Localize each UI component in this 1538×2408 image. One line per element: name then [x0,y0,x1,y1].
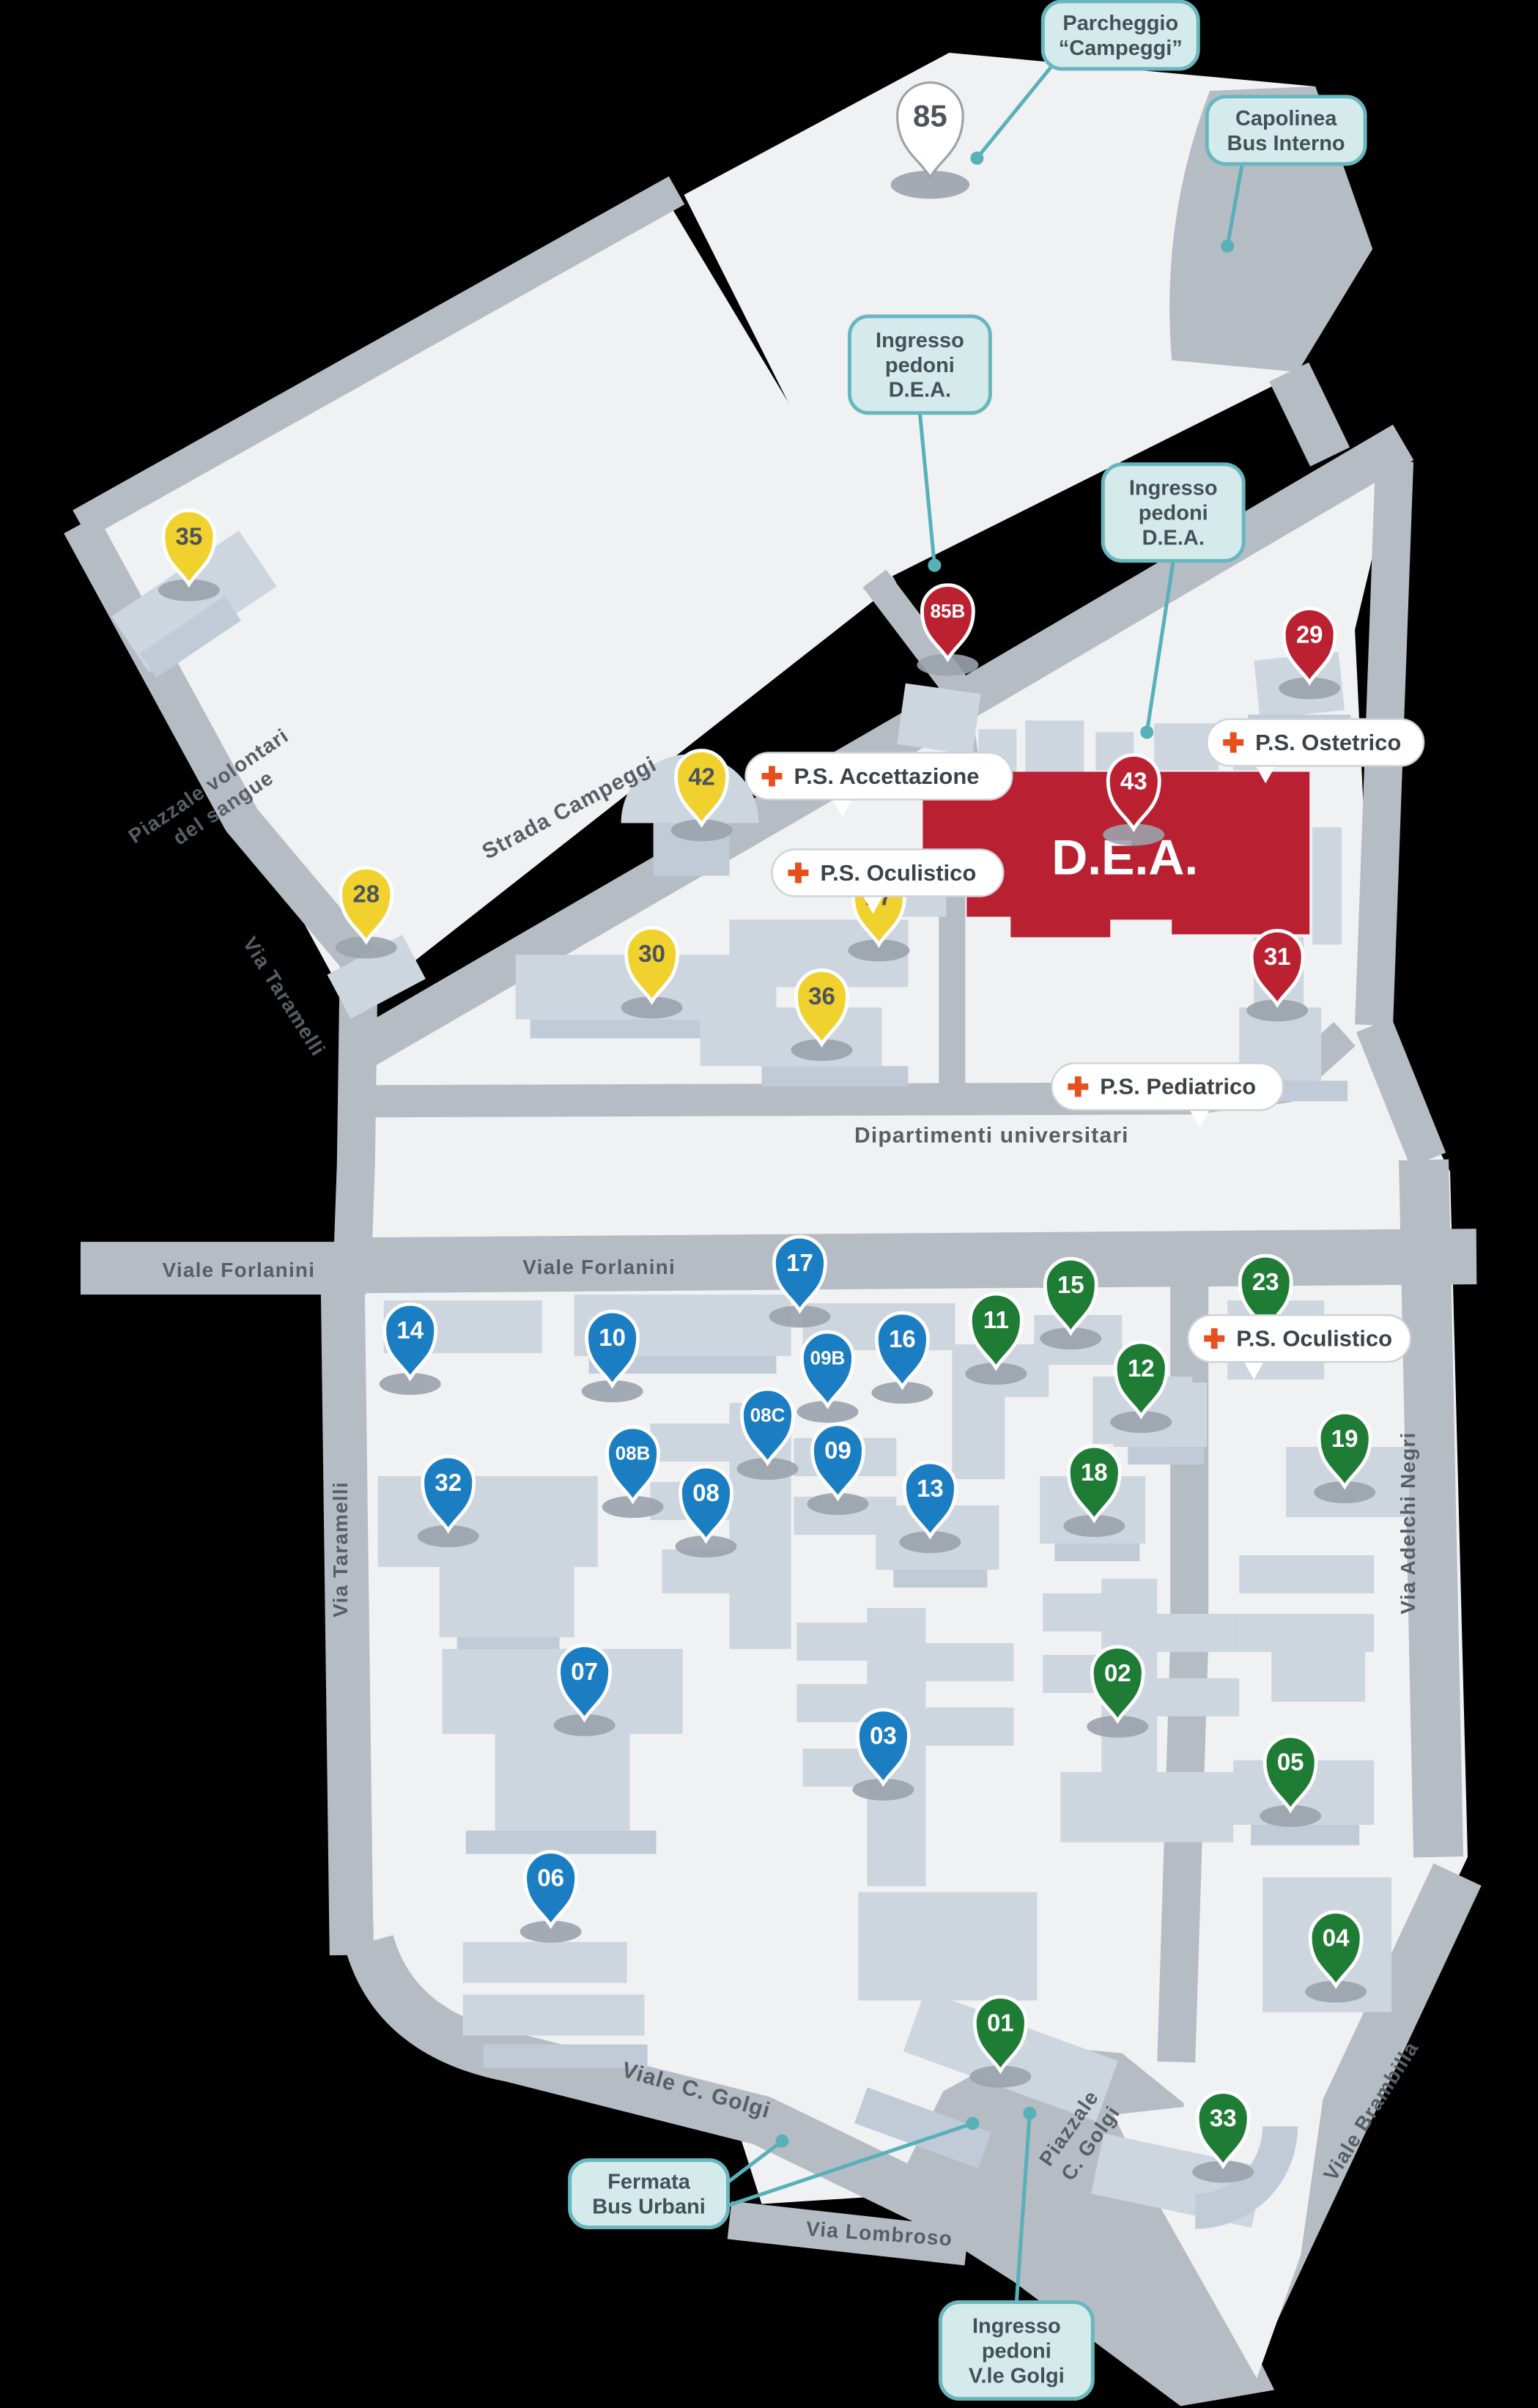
building [796,1623,887,1661]
map-pin-08[interactable]: 08 [676,1467,737,1557]
building [463,1942,627,1983]
leader-dot [1221,240,1234,253]
building [893,1570,987,1588]
pill-text: P.S. Ostetrico [1255,730,1401,755]
pin-number: 11 [983,1306,1009,1333]
pin-number: 09 [824,1437,851,1464]
pin-number: 31 [1264,943,1291,970]
map-pin-16[interactable]: 16 [871,1313,933,1404]
map-pin-01[interactable]: 01 [969,1997,1031,2088]
map-pin-14[interactable]: 14 [380,1304,441,1395]
pin-number: 08 [692,1479,720,1506]
building [1154,1614,1239,1652]
leader-dot [775,2135,788,2148]
pin-number: 85 [913,99,947,133]
building [1060,1772,1233,1842]
map-pin-09b[interactable]: 09B [796,1332,858,1423]
building [1271,1640,1365,1702]
pin-number: 33 [1210,2104,1237,2131]
map-pin-10[interactable]: 10 [582,1311,643,1402]
map-pin-12[interactable]: 12 [1110,1342,1172,1433]
pin-number: 36 [808,982,835,1009]
map-pin-35[interactable]: 35 [158,511,220,601]
map-pin-08b[interactable]: 08B [602,1427,664,1518]
building [897,683,981,755]
pin-number: 18 [1081,1459,1108,1486]
building [1239,1555,1374,1593]
leader-dot [1023,2107,1036,2120]
building [700,1007,882,1066]
pin-number: 32 [435,1469,462,1496]
map-pin-09[interactable]: 09 [807,1424,868,1515]
building [463,1995,645,2036]
building [440,1567,574,1637]
building [1251,1825,1359,1845]
callout-text: IngressopedoniD.E.A. [876,329,964,402]
callout-text: Parcheggio“Campeggi” [1059,12,1183,60]
building [1043,1593,1125,1631]
pin-number: 85B [931,600,966,622]
pin-number: 23 [1252,1268,1279,1295]
red-cross-icon [769,766,775,786]
pin-number: 06 [537,1864,564,1892]
pill-text: P.S. Oculistico [1236,1326,1392,1352]
map-pin-30[interactable]: 30 [621,927,683,1018]
pill-text: P.S. Accettazione [794,763,979,789]
map-pin-11[interactable]: 11 [965,1294,1027,1385]
map-pin-07[interactable]: 07 [554,1645,615,1736]
pin-number: 43 [1120,767,1147,794]
pin-number: 15 [1057,1271,1084,1298]
callout-text: FermataBus Urbani [592,2171,706,2219]
red-cross-icon [1230,733,1237,753]
building [858,1892,1037,2001]
callout-text: CapolineaBus Interno [1227,107,1345,155]
pin-number: 19 [1331,1425,1358,1452]
map-pin-15[interactable]: 15 [1040,1259,1101,1349]
pin-number: 09B [810,1346,846,1368]
pin-number: 07 [571,1658,598,1685]
red-cross-icon [795,862,802,883]
building [1312,827,1342,944]
pin-number: 04 [1323,1924,1350,1952]
leader-dot [1140,726,1153,739]
map-pin-43[interactable]: 43 [1103,755,1164,846]
street-label-via-taramelli: Via Taramelli [329,1481,352,1618]
callout-text: IngressopedoniD.E.A. [1129,477,1218,550]
pin-number: 30 [638,940,665,967]
map-pin-06[interactable]: 06 [520,1852,582,1943]
map-pin-04[interactable]: 04 [1305,1912,1367,2003]
pin-number: 29 [1296,620,1323,648]
pill-text: P.S. Oculistico [820,860,976,886]
pin-number: 13 [917,1475,944,1502]
pin-number: 28 [352,880,380,907]
leader-dot [928,559,941,572]
map-pin-31[interactable]: 31 [1246,930,1308,1021]
pin-number: 35 [176,523,203,550]
building [651,1423,747,1462]
building [762,1066,909,1086]
street-label-dipartimenti-universitari: Dipartimenti universitari [854,1123,1129,1147]
pin-number: 02 [1104,1659,1131,1686]
street-label-viale-forlanini: Viale Forlanini [163,1259,316,1281]
building [923,1643,1013,1681]
map-pin-17[interactable]: 17 [769,1237,831,1327]
pin-number: 17 [786,1249,813,1276]
red-cross-icon [1211,1328,1218,1349]
map-pin-29[interactable]: 29 [1279,609,1340,700]
map-pin-19[interactable]: 19 [1314,1412,1375,1503]
building [466,1831,657,1854]
map-pin-32[interactable]: 32 [418,1456,479,1547]
building [378,1476,598,1567]
building [1025,721,1084,774]
building [1154,1678,1239,1716]
pill-text: P.S. Pediatrico [1100,1074,1256,1100]
pin-number: 10 [599,1324,626,1351]
pin-number: 14 [396,1316,424,1344]
pin-number: 05 [1277,1749,1304,1776]
callout-text: IngressopedoniV.le Golgi [969,2314,1065,2387]
building [1128,1447,1204,1464]
building [923,1708,1013,1746]
map-pin-33[interactable]: 33 [1192,2092,1254,2183]
map-pin-18[interactable]: 18 [1063,1446,1125,1537]
pin-number: 12 [1128,1355,1155,1382]
map-pin-36[interactable]: 36 [791,970,852,1061]
hospital-campus-map: D.E.A. Piazzale volontaridel sangueVia T… [0,0,1538,2407]
map-pin-08c[interactable]: 08C [737,1389,799,1480]
leader-dot [966,2117,979,2130]
map-pin-85b[interactable]: 85B [917,585,978,676]
building [484,2045,648,2068]
pin-number: 42 [688,763,715,790]
road-taramelli-vertical [343,1286,352,1955]
pin-number: 16 [889,1325,916,1352]
map-pin-05[interactable]: 05 [1260,1736,1321,1827]
road-adelchi-negri [1424,1160,1438,1857]
pin-number: 03 [870,1722,897,1749]
building [662,1549,791,1593]
map-pin-02[interactable]: 02 [1087,1647,1148,1738]
map-pin-13[interactable]: 13 [899,1462,961,1553]
street-label-viale-forlanini: Viale Forlanini [522,1256,676,1278]
map-pin-28[interactable]: 28 [336,867,397,958]
leader-dot [970,152,983,165]
building [1054,1544,1139,1561]
map-pin-03[interactable]: 03 [852,1710,914,1801]
map-pin-85[interactable]: 85 [891,83,969,199]
pin-number: 01 [987,2009,1014,2037]
map-pin-42[interactable]: 42 [671,751,733,842]
pin-number: 08C [750,1404,785,1426]
red-cross-icon [1075,1076,1082,1097]
pin-number: 08B [615,1442,651,1464]
street-label-via-adelchi-negri: Via Adelchi Negri [1397,1432,1419,1615]
